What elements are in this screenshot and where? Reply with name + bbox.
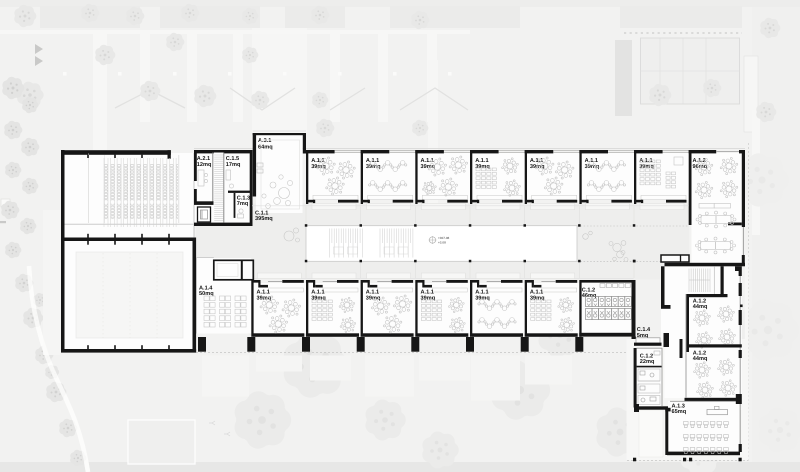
svg-text:A.1.1: A.1.1 [530,289,543,295]
svg-text:A.1.1: A.1.1 [311,289,324,295]
svg-text:A.1.1: A.1.1 [475,289,488,295]
svg-text:A.1.1: A.1.1 [475,158,488,164]
svg-text:A.1.1: A.1.1 [421,158,434,164]
svg-text:22mq: 22mq [640,359,655,365]
svg-text:A.1.1: A.1.1 [421,289,434,295]
svg-text:64mq: 64mq [258,144,273,150]
svg-text:39mq: 39mq [530,296,545,302]
svg-text:+3.08: +3.08 [438,241,446,245]
svg-text:A.3.1: A.3.1 [258,138,271,144]
svg-text:12mq: 12mq [197,162,212,168]
svg-text:+307.08: +307.08 [438,236,450,240]
svg-text:A.1.1: A.1.1 [311,158,324,164]
svg-text:39mq: 39mq [475,296,490,302]
svg-text:44mq: 44mq [693,304,708,310]
svg-text:65mq: 65mq [672,409,687,415]
svg-text:A.1.1: A.1.1 [257,289,270,295]
svg-text:39mq: 39mq [311,296,326,302]
svg-text:17mq: 17mq [226,162,241,168]
svg-text:A.1.1: A.1.1 [366,289,379,295]
svg-text:395mq: 395mq [255,216,273,222]
svg-text:39mq: 39mq [421,296,436,302]
svg-text:39mq: 39mq [475,164,490,170]
svg-text:7mq: 7mq [237,201,249,207]
svg-text:44mq: 44mq [693,356,708,362]
